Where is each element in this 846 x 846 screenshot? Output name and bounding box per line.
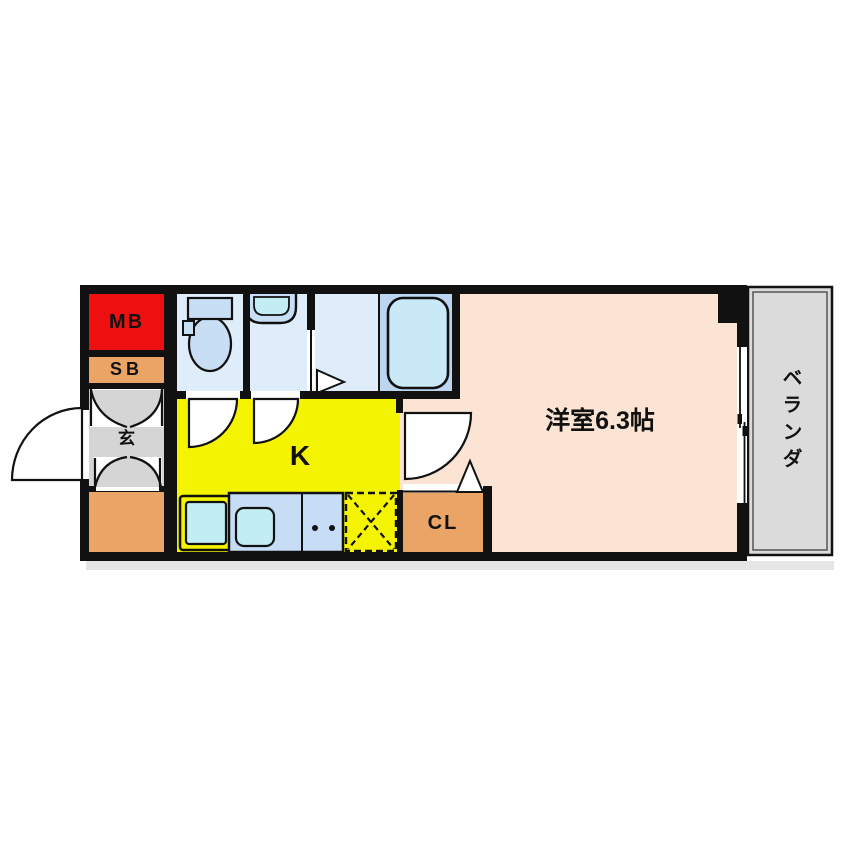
wall-top bbox=[80, 285, 747, 294]
wall-kitchen-mainroom bbox=[396, 391, 403, 413]
wall-toilet-washroom bbox=[243, 288, 250, 399]
bathtub bbox=[388, 298, 448, 388]
washbasin-icon bbox=[246, 292, 296, 323]
washing-machine-tub bbox=[186, 502, 226, 544]
veranda-window-icon bbox=[737, 347, 747, 503]
floorplan-page: MB SB 玄 K CL 洋室6.3帖 ベランダ bbox=[0, 0, 846, 846]
toilet-door-opening bbox=[186, 391, 240, 399]
wall-bath-bottom-3 bbox=[300, 391, 460, 399]
wall-bath-mainroom bbox=[452, 288, 460, 399]
closet-label: CL bbox=[403, 493, 483, 552]
window-lock-tick bbox=[738, 414, 743, 424]
washbasin-bowl bbox=[254, 297, 289, 315]
stove-burner-dot bbox=[312, 525, 318, 531]
plan-shadow bbox=[86, 561, 834, 570]
wall-left-upper bbox=[80, 285, 89, 410]
wall-corner-block bbox=[718, 288, 742, 323]
entrance-bottom-double-door-icon bbox=[94, 457, 162, 487]
stove-burner-dot bbox=[329, 525, 335, 531]
entrance-label: 玄 bbox=[89, 420, 164, 456]
wall-left-column bbox=[164, 288, 177, 552]
wall-bottom bbox=[80, 552, 747, 561]
wall-left-lower bbox=[80, 479, 89, 561]
toilet-bowl bbox=[189, 317, 231, 371]
wall-right-lower bbox=[737, 503, 747, 561]
veranda-label: ベランダ bbox=[748, 287, 832, 555]
window-lock-tick bbox=[743, 426, 748, 436]
wall-sb-entrance bbox=[89, 383, 164, 389]
washroom-door-opening bbox=[251, 391, 300, 399]
wall-closet-mainroom bbox=[483, 486, 492, 552]
kitchen-label: K bbox=[240, 432, 360, 480]
storage-box bbox=[89, 492, 164, 552]
wall-bath-bottom-2 bbox=[240, 391, 251, 399]
meter-box-label: MB bbox=[89, 294, 164, 350]
kitchen-counter bbox=[229, 493, 343, 552]
washing-machine-icon bbox=[180, 496, 232, 550]
bathtub-icon bbox=[388, 298, 448, 388]
wall-washroom-bath bbox=[307, 288, 315, 330]
wall-bath-bottom-1 bbox=[177, 391, 186, 399]
main-room-label: 洋室6.3帖 bbox=[470, 398, 730, 444]
toilet-tank bbox=[188, 298, 232, 319]
window-opening bbox=[737, 347, 747, 503]
front-door-swing-icon bbox=[12, 408, 82, 480]
toilet-handle bbox=[183, 321, 194, 335]
shoe-box-label: SB bbox=[89, 355, 164, 383]
kitchen-sink bbox=[236, 508, 274, 546]
